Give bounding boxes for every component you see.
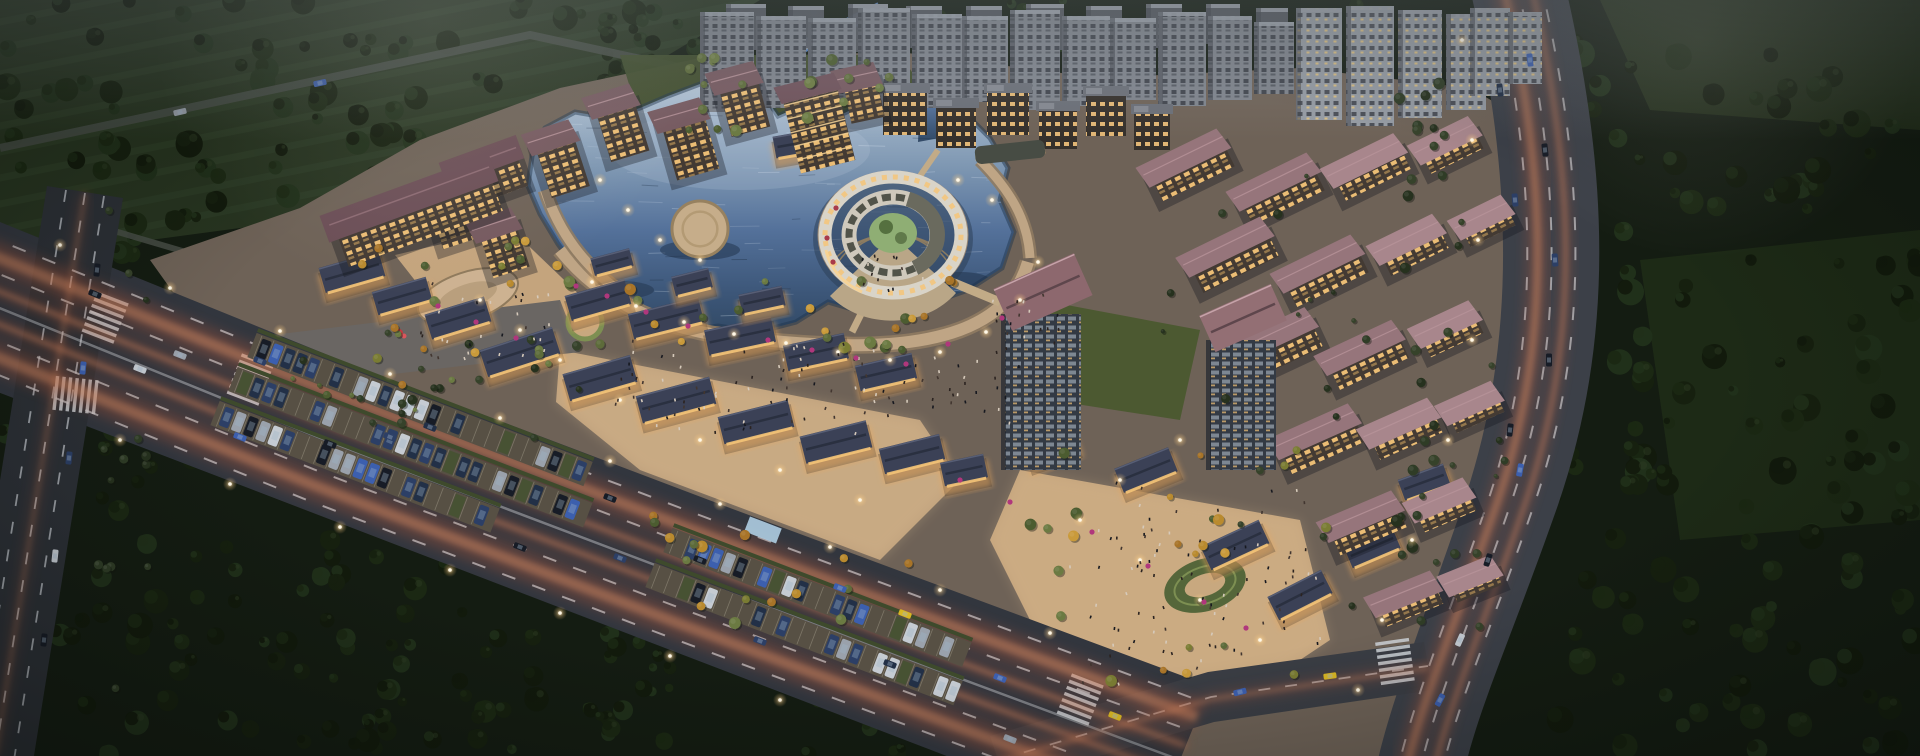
- aerial-rendering-stage: [0, 0, 1920, 756]
- lakeside-masterplan-rendering: [0, 0, 1920, 756]
- atmosphere-layer: [0, 0, 1920, 756]
